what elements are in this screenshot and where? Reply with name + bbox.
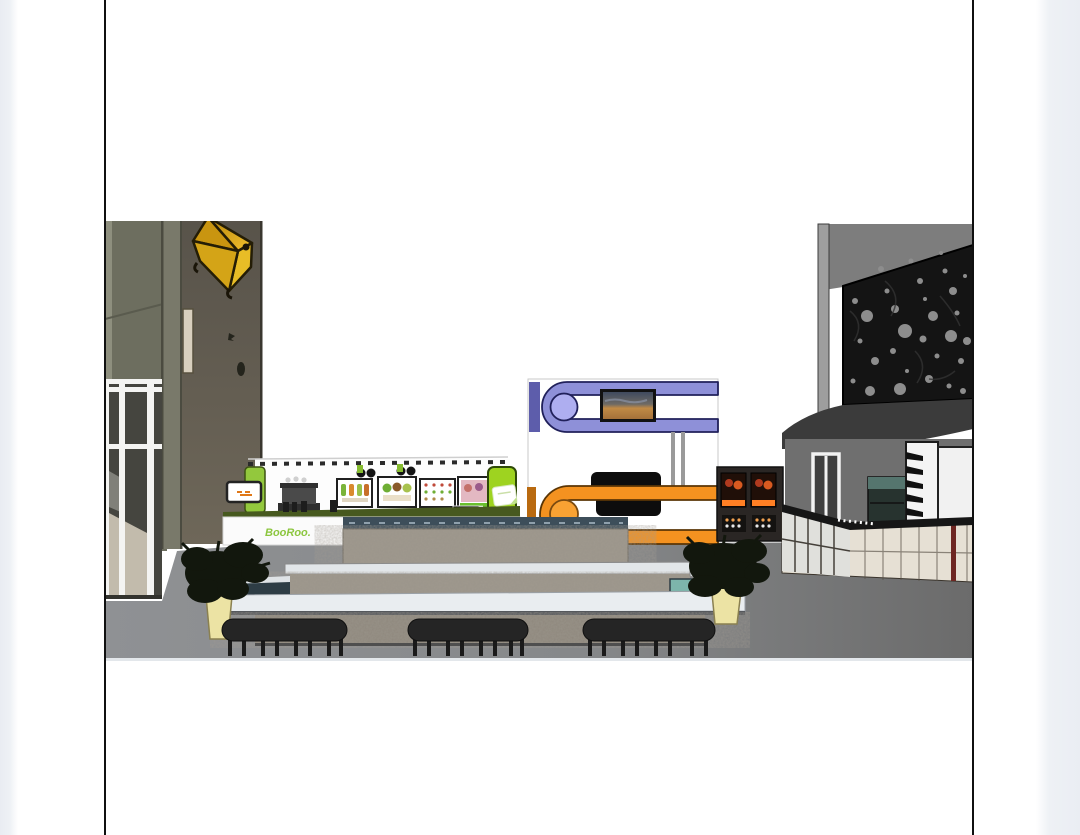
stool-bench-3: [583, 619, 715, 641]
glass-storefront: [105, 379, 162, 599]
stool-bench-1: [222, 619, 347, 641]
page-border-left: [104, 0, 106, 835]
upper-circle: [551, 394, 578, 421]
vending-screen-2: [751, 473, 776, 507]
wall-ornament-dot: [237, 362, 245, 376]
wall-panel: [183, 309, 193, 373]
tv-screen-top: [600, 389, 656, 422]
column-post-2: [681, 432, 685, 486]
vending-buttons-1: [722, 515, 746, 532]
menu-board-1: [337, 479, 372, 507]
left-edge-strip: [0, 0, 18, 835]
rendering-image: BooRoo.: [105, 221, 973, 658]
note-icon: [492, 484, 517, 506]
page-border-right: [972, 0, 974, 835]
shelf-unit: [906, 442, 938, 526]
image-bottom-shadow: [105, 658, 973, 661]
column-post-1: [671, 432, 675, 486]
fountain-coping-outer: [223, 591, 745, 613]
vending-screen-1: [721, 473, 746, 507]
rendering-svg: BooRoo.: [105, 221, 973, 658]
coping-shadow: [223, 611, 745, 615]
star-knob: [243, 244, 250, 251]
viewer-page: BooRoo.: [0, 0, 1080, 835]
menu-board-2: [378, 477, 416, 507]
vending-machines: [717, 467, 783, 541]
white-cabinet: [938, 447, 973, 526]
kiosk-brand-text: BooRoo.: [265, 527, 311, 539]
display-case: [868, 477, 906, 526]
stool-bench-2: [408, 619, 528, 641]
fountain-coping-mid: [285, 562, 709, 574]
green-bracket-2: [397, 464, 403, 472]
green-bracket-1: [357, 465, 363, 473]
corner-column: [162, 221, 182, 549]
upper-band-side: [529, 382, 540, 432]
right-edge-strip: [1036, 0, 1080, 835]
vending-buttons-2: [752, 515, 776, 532]
counter-red-stripe: [951, 524, 956, 581]
kiosk-logo-sign: [227, 482, 261, 502]
menu-board-3: [420, 479, 455, 507]
